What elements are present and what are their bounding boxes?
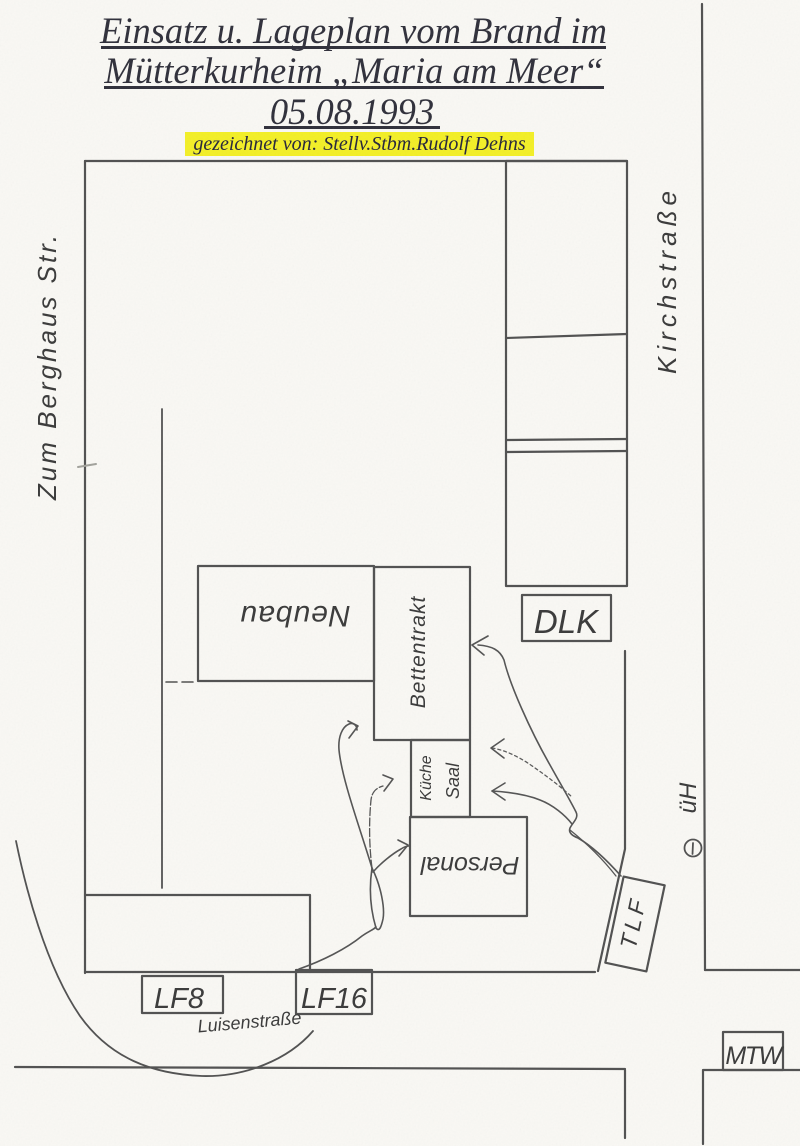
svg-text:üH: üH [675, 782, 702, 813]
svg-text:Luisenstraße: Luisenstraße [197, 1008, 302, 1037]
svg-text:LF16: LF16 [301, 983, 368, 1015]
svg-text:Zum Berghaus Str.: Zum Berghaus Str. [32, 232, 62, 501]
svg-text:Küche: Küche [418, 755, 435, 800]
svg-text:TLF: TLF [615, 894, 651, 951]
svg-text:Personal: Personal [419, 851, 519, 879]
svg-text:Neubau: Neubau [239, 599, 350, 632]
svg-text:Bettentrakt: Bettentrakt [407, 596, 430, 709]
svg-text:MTW: MTW [725, 1042, 784, 1070]
svg-text:Saal: Saal [443, 762, 463, 799]
svg-text:LF8: LF8 [154, 983, 204, 1015]
svg-text:Kirchstraße: Kirchstraße [652, 186, 682, 374]
svg-text:DLK: DLK [534, 603, 600, 640]
